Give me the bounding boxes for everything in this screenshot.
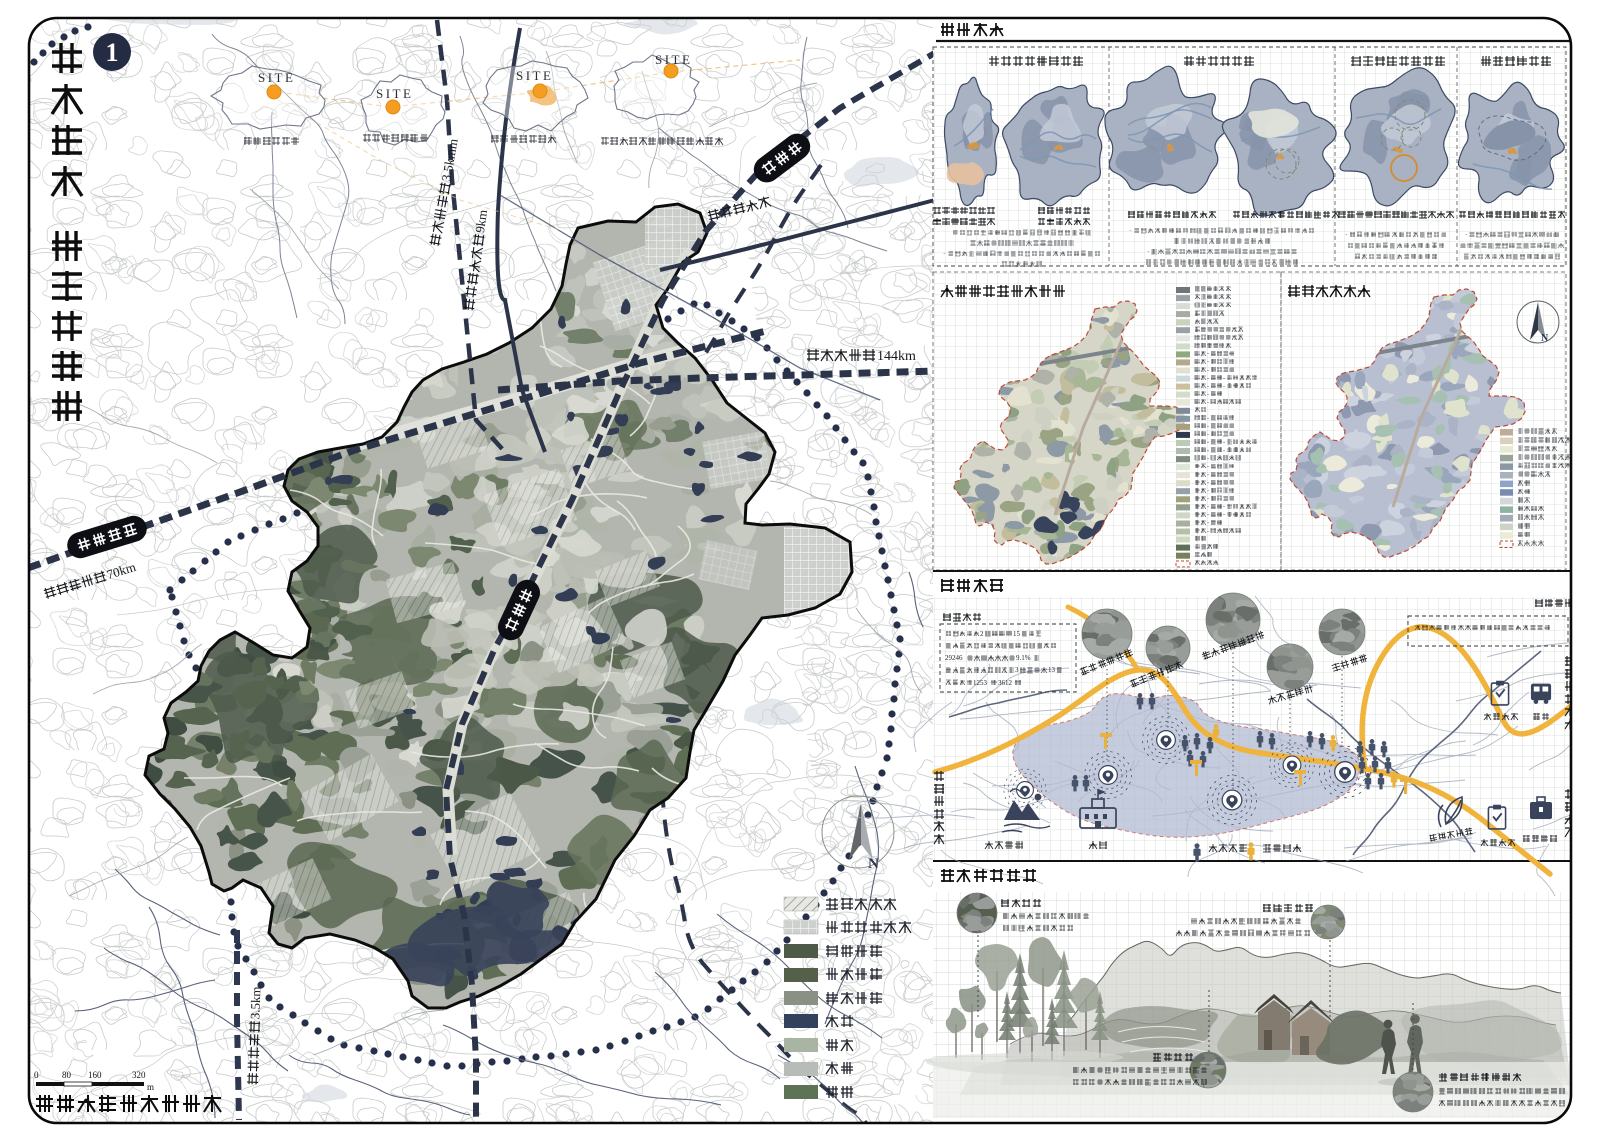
svg-text:-: - [1223, 511, 1225, 518]
svg-text:-: - [1223, 375, 1225, 382]
svg-text:320: 320 [132, 1070, 146, 1080]
svg-text:-: - [1223, 447, 1225, 454]
svg-text:80: 80 [62, 1070, 72, 1080]
svg-text:-: - [1207, 503, 1209, 510]
svg-text:N: N [868, 856, 879, 872]
svg-text:3: 3 [1015, 666, 1019, 674]
svg-text:·: · [1465, 231, 1467, 239]
svg-text:160: 160 [88, 1070, 102, 1080]
svg-text:SITE: SITE [376, 86, 413, 101]
svg-text:-: - [1207, 439, 1209, 446]
svg-text:·: · [943, 250, 945, 258]
svg-text:-: - [1207, 423, 1209, 430]
svg-text:2: 2 [980, 630, 984, 638]
svg-text:-: - [1223, 503, 1225, 510]
svg-text:-: - [1207, 358, 1209, 365]
svg-text:m: m [147, 1082, 154, 1092]
svg-text:N: N [1541, 333, 1549, 344]
svg-text:0: 0 [34, 1070, 39, 1080]
svg-text:SITE: SITE [258, 70, 295, 85]
svg-text:-: - [1207, 350, 1209, 357]
svg-text:SITE: SITE [516, 68, 553, 83]
svg-text:-: - [1207, 375, 1209, 382]
svg-text:3.5km: 3.5km [247, 986, 263, 1019]
svg-text:-: - [1207, 519, 1209, 526]
svg-text:-: - [1223, 439, 1225, 446]
svg-text:1: 1 [106, 38, 119, 67]
svg-text:1253: 1253 [973, 679, 988, 687]
svg-text:-: - [1207, 471, 1209, 478]
svg-text:3612: 3612 [998, 679, 1013, 687]
svg-text:15: 15 [1013, 630, 1021, 638]
svg-text:-: - [1207, 399, 1209, 406]
svg-text:-: - [1207, 479, 1209, 486]
svg-text:29246: 29246 [945, 654, 963, 662]
svg-text:-: - [1207, 383, 1209, 390]
svg-text:-: - [1207, 528, 1209, 535]
svg-text:-: - [1207, 455, 1209, 462]
svg-text:-: - [1207, 495, 1209, 502]
svg-text:-: - [1223, 383, 1225, 390]
svg-text:-: - [1207, 511, 1209, 518]
svg-text:9.1%: 9.1% [1016, 654, 1031, 662]
svg-text:9km: 9km [472, 209, 490, 234]
svg-text:-: - [1207, 391, 1209, 398]
svg-text:-: - [1207, 463, 1209, 470]
svg-text:-: - [1207, 487, 1209, 494]
svg-text:-: - [1207, 431, 1209, 438]
svg-text:·: · [1129, 227, 1131, 235]
svg-text:-: - [1207, 447, 1209, 454]
svg-text:-: - [1207, 415, 1209, 422]
svg-text:13: 13 [1048, 666, 1056, 674]
svg-text:·: · [1345, 231, 1347, 239]
svg-text:·: · [1147, 248, 1149, 256]
svg-text:-: - [1207, 367, 1209, 374]
svg-text:144km: 144km [877, 349, 916, 364]
